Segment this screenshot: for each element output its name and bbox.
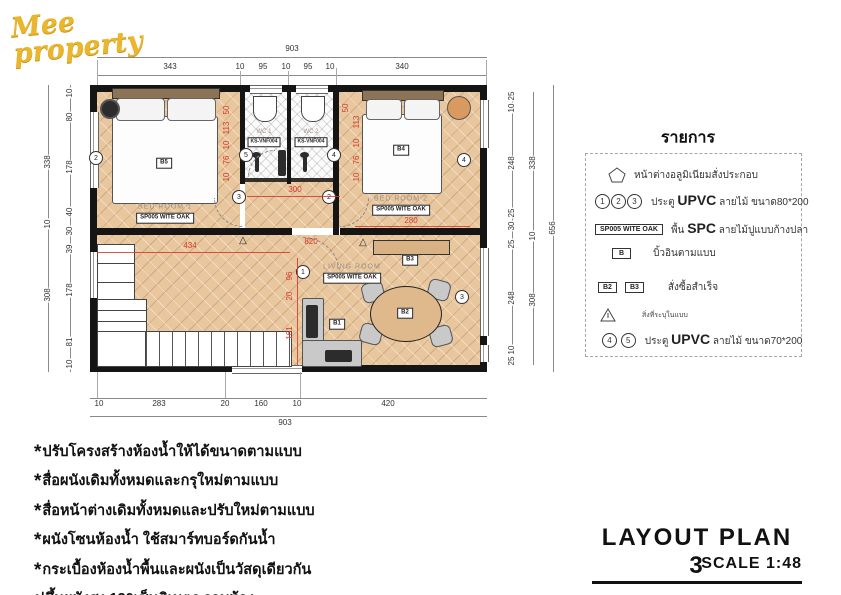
window-living-right-low	[480, 345, 489, 362]
legend-item-window: หน้าต่างอลูมิเนียมสั่งประกอบ	[608, 167, 758, 183]
door-marker-3-hall: 3	[232, 190, 246, 204]
red-dim-line	[355, 226, 470, 227]
pentagon-icon	[608, 167, 626, 183]
wc1-water-heater	[278, 150, 286, 176]
wall-wc-bottom	[240, 178, 339, 182]
dim-label: 308	[529, 292, 537, 307]
plan-scale: SCALE 1:48	[592, 555, 802, 573]
bedroom1-floor-label: SP005 WITE OAK	[136, 213, 194, 224]
wc2-shower-icon	[303, 156, 307, 172]
dim-label: 283	[151, 400, 166, 408]
red-dim-line	[297, 258, 298, 365]
plan-title: LAYOUT PLAN 3	[592, 524, 802, 584]
red-dim-label: 113	[223, 121, 231, 136]
note-line: *ปรับโครงสร้างห้องน้ำให้ได้ขนาดตามแบบ	[34, 438, 374, 467]
door-number-icon: 5	[621, 333, 636, 348]
floor-code-box: SP005 WITE OAK	[595, 224, 663, 235]
wc1-name: WC 1	[257, 129, 272, 135]
dim-label: 40	[66, 207, 74, 218]
dim-label: 10	[281, 63, 292, 71]
wc1-toilet	[253, 96, 277, 122]
door-number-icon: 4	[602, 333, 617, 348]
red-dim-label: 10	[353, 138, 361, 149]
wc2-shower-head-icon	[300, 152, 309, 158]
wall-wc-mid	[287, 85, 291, 184]
legend-item-label: ประตู UPVC ลายไม้ ขนาด70*200	[645, 331, 803, 349]
dim-label: 178	[66, 282, 74, 297]
dim-label: 248	[508, 155, 516, 170]
dim-label: 338	[529, 155, 537, 170]
bed1-pillow-right	[167, 98, 216, 121]
dim-label: 656	[549, 220, 557, 235]
bed1-item-label: B5	[156, 158, 172, 169]
red-dim-label: 820	[303, 238, 318, 246]
living-floor-label: SP005 WITE OAK	[323, 273, 381, 284]
window-wc2-top	[296, 85, 328, 94]
dim-label: 80	[66, 112, 74, 123]
ottoman	[325, 350, 352, 362]
legend-item-doors-80: 123 ประตู UPVC ลายไม้ ขนาด80*200	[595, 192, 809, 210]
dim-label: 81	[66, 337, 74, 348]
extension-line	[225, 372, 226, 398]
wall-wc-left	[240, 85, 245, 184]
red-dim-label: 300	[287, 186, 302, 194]
wc2-tile-label: KS-VNF004	[295, 137, 328, 147]
dim-label: 10	[235, 63, 246, 71]
dim-label: 30	[66, 226, 74, 237]
window-wc1-top	[250, 85, 282, 94]
layout-plan-canvas: Mee property B5 BED ROOM 1 SP005 WITE OA…	[0, 0, 841, 595]
extension-line	[300, 372, 301, 398]
legend-item-label: หน้าต่างอลูมิเนียมสั่งประกอบ	[634, 168, 758, 183]
dim-label: 10	[508, 345, 516, 356]
red-dim-label: 10	[223, 140, 231, 151]
bed2-side-table	[447, 96, 471, 120]
red-dim-label: 50	[342, 103, 350, 114]
legend-item-label: พื้น SPC ลายไม้ปูแบบก้างปลา	[671, 220, 808, 238]
red-dim-label: 76	[223, 155, 231, 166]
door-marker-5-wc1: 5	[239, 148, 253, 162]
ceiling-fan-icon	[100, 99, 120, 119]
notes-block: *ปรับโครงสร้างห้องน้ำให้ได้ขนาดตามแบบ *ส…	[34, 438, 374, 595]
red-dim-label: 280	[403, 217, 418, 225]
dim-label: 25	[508, 239, 516, 250]
dim-label: 10	[292, 400, 303, 408]
extension-line	[97, 372, 98, 398]
warning-triangle-icon: △	[359, 238, 367, 248]
legend-title: รายการ	[661, 126, 715, 151]
wall-divider-right	[340, 228, 487, 235]
door-marker-4-bedroom2: 4	[457, 153, 471, 167]
note-line: *สื่อหน้าต่างเดิมทั้งหมดและปรับใหม่ตามแบ…	[34, 497, 374, 526]
builtin-box: B	[612, 248, 631, 259]
bedroom2-floor-label: SP005 WITE OAK	[372, 205, 430, 216]
door-number-icon: 2	[611, 194, 626, 209]
tv-icon	[306, 305, 318, 338]
dim-label: 20	[220, 400, 231, 408]
console-table	[373, 240, 450, 255]
red-dim-label: 96	[286, 271, 294, 282]
dim-line	[90, 398, 487, 399]
wall-divider-left	[90, 228, 292, 235]
door-marker-3-living: 3	[455, 290, 469, 304]
door-number-icon: 1	[595, 194, 610, 209]
dim-label: 10	[529, 231, 537, 242]
dim-label: 10	[325, 63, 336, 71]
door-marker-4-wc2: 4	[327, 148, 341, 162]
dim-label: 10	[508, 103, 516, 114]
dim-line	[90, 416, 487, 417]
dim-label: 95	[258, 63, 269, 71]
red-dim-label: 161	[286, 325, 294, 340]
dim-label: 25	[508, 91, 516, 102]
note-line: *กระเบื้องห้องน้ำพื้นและผนังเป็นวัสดุเดี…	[34, 556, 374, 585]
legend-item-label: สั่งซื้อสำเร็จ	[668, 280, 718, 295]
item-b3-box: B3	[625, 282, 644, 293]
legend-item-label: บิ้วอินตามแบบ	[653, 246, 716, 261]
red-dim-label: 113	[353, 115, 361, 130]
stair-upper	[97, 299, 147, 333]
sofa-item-label: B1	[329, 319, 345, 330]
dim-label: 178	[66, 159, 74, 174]
extension-line	[336, 68, 337, 85]
dining-item-label: B2	[397, 308, 413, 319]
bedroom2-name: BED ROOM 2	[374, 196, 428, 203]
red-dim-label: 434	[182, 242, 197, 250]
red-dim-label: 10	[353, 172, 361, 183]
dim-label: 903	[277, 419, 292, 427]
wc2-name: WC 2	[304, 129, 319, 135]
red-dim-label: 76	[353, 155, 361, 166]
red-dim-line	[247, 196, 340, 197]
warning-triangle-icon	[600, 308, 616, 322]
bed2-pillow-left	[366, 99, 402, 120]
dim-label: 10	[94, 400, 105, 408]
door-marker-1-living: 1	[296, 265, 310, 279]
door-marker-2-left: 2	[89, 151, 103, 165]
dim-label: 420	[380, 400, 395, 408]
bed2-item-label: B4	[393, 145, 409, 156]
wc2-toilet	[301, 96, 325, 122]
legend-item-readymade: B2 B3 สั่งซื้อสำเร็จ	[598, 280, 718, 295]
red-dim-line	[97, 252, 290, 253]
door-marker-2-hall: 2	[322, 190, 336, 204]
legend-item-warning: สิ่งที่ระบุในแบบ	[600, 308, 688, 322]
dim-label: 338	[44, 154, 52, 169]
item-b2-box: B2	[598, 282, 617, 293]
legend-item-label: ประตู UPVC ลายไม้ ขนาด80*200	[651, 192, 809, 210]
dim-label: 340	[394, 63, 409, 71]
door-number-icon: 3	[627, 194, 642, 209]
dim-label: 248	[508, 290, 516, 305]
wc1-tile-label: KS-VNF004	[248, 137, 281, 147]
dim-label: 10	[66, 359, 74, 370]
dim-label: 903	[284, 45, 299, 53]
dim-label: 160	[253, 400, 268, 408]
legend-item-builtin: B บิ้วอินตามแบบ	[612, 246, 716, 261]
console-item-label: B3	[402, 255, 418, 266]
dim-label: 30	[508, 221, 516, 232]
legend-item-doors-70: 4 5 ประตู UPVC ลายไม้ ขนาด70*200	[602, 331, 802, 349]
dim-label: 10	[66, 88, 74, 99]
dim-line	[533, 92, 534, 365]
red-dim-label: 20	[286, 291, 294, 302]
dim-label: 39	[66, 244, 74, 255]
bed1-pillow-left	[116, 98, 165, 121]
window-bedroom1-left	[90, 112, 99, 188]
dim-line	[97, 75, 487, 76]
window-bedroom2-right	[480, 100, 489, 148]
red-dim-label: 50	[223, 105, 231, 116]
stair-landing	[97, 331, 147, 367]
extension-line	[97, 60, 98, 85]
red-dim-label: 10	[223, 172, 231, 183]
dim-label: 10	[44, 219, 52, 230]
dim-label: 343	[162, 63, 177, 71]
dim-label: 25	[508, 208, 516, 219]
note-line: *สื่อผนังเดิมทั้งหมดและกรุใหม่ตามแบบ	[34, 467, 374, 496]
bed2-pillow-right	[404, 99, 440, 120]
dim-label: 95	[303, 63, 314, 71]
note-line: *ผนังโซนห้องน้ำ ใช้สมาร์ทบอร์ดกันน้ำ	[34, 526, 374, 555]
dim-label: 25	[508, 356, 516, 367]
bedroom1-name: BED ROOM 1	[138, 204, 192, 211]
stair-run	[145, 331, 292, 367]
dim-label: 308	[44, 287, 52, 302]
extension-line	[486, 60, 487, 85]
legend-item-floor: SP005 WITE OAK พื้น SPC ลายไม้ปูแบบก้างป…	[595, 220, 808, 238]
warning-triangle-icon: △	[239, 236, 247, 246]
dim-line	[97, 57, 487, 58]
window-living-right	[480, 248, 489, 336]
legend-item-label: สิ่งที่ระบุในแบบ	[642, 310, 688, 321]
note-line: ปูขึ้นผนังสูง 120เซ็นติเมตร รอบห้อง	[34, 585, 374, 595]
